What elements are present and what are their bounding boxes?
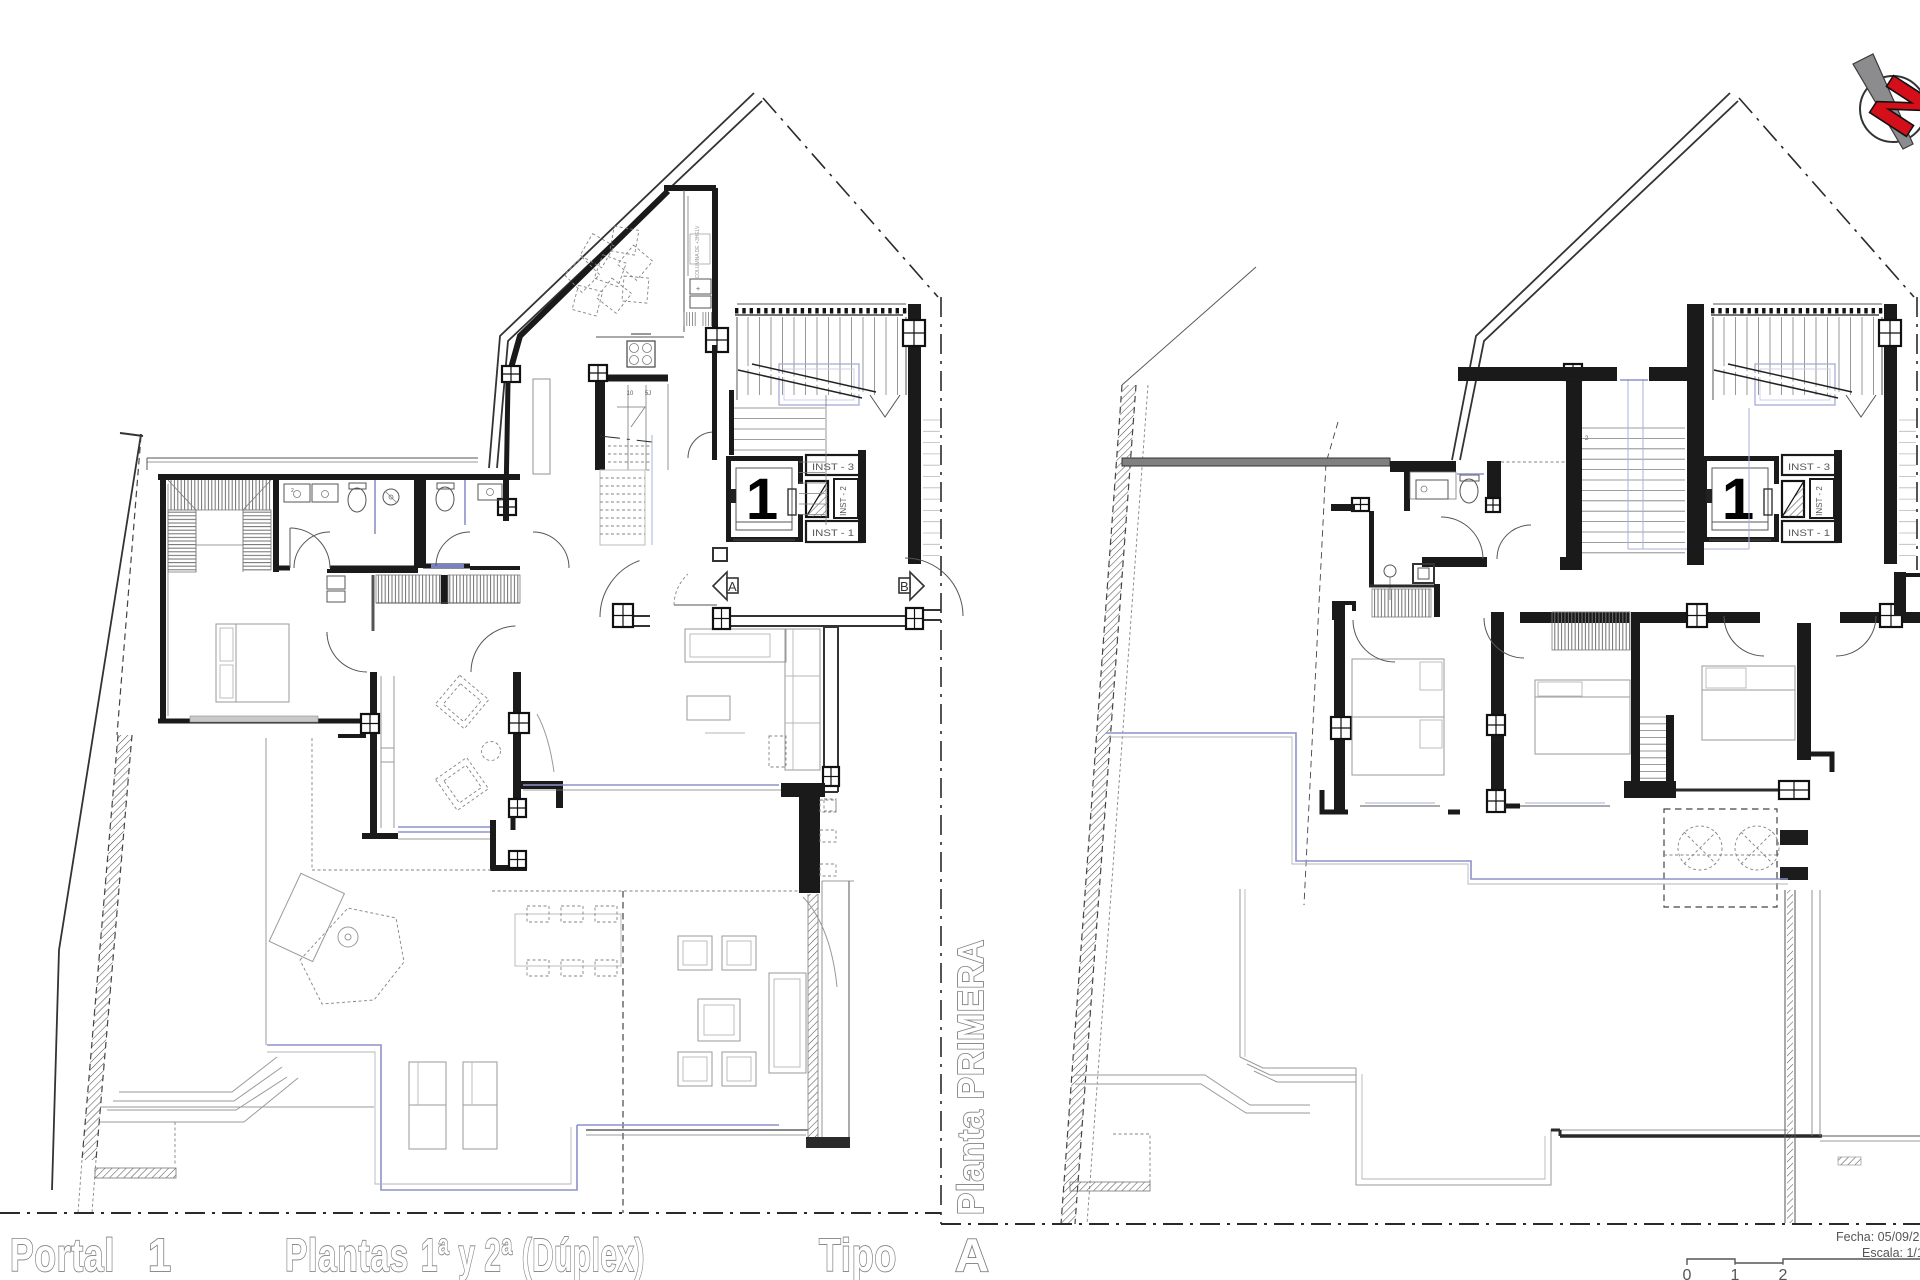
svg-text:A: A [955, 1229, 990, 1280]
svg-text:INST - 2: INST - 2 [1815, 486, 1824, 516]
svg-text:1: 1 [148, 1229, 172, 1280]
svg-text:Portal: Portal [10, 1229, 115, 1280]
svg-text:5J: 5J [645, 391, 651, 397]
svg-text:10: 10 [627, 391, 634, 397]
svg-text:Planta PRIMERA: Planta PRIMERA [950, 939, 991, 1215]
svg-text:2: 2 [291, 488, 294, 494]
svg-text:0: 0 [1683, 1267, 1692, 1280]
svg-text:1: 1 [1731, 1267, 1740, 1280]
svg-text:1ª y 2ª (Dúplex): 1ª y 2ª (Dúplex) [421, 1229, 645, 1280]
svg-text:INST - 1: INST - 1 [1788, 528, 1830, 538]
svg-text:+: + [696, 286, 700, 293]
svg-text:Escala: 1/100: Escala: 1/100 [1862, 1246, 1920, 1260]
svg-text:B: B [900, 579, 909, 594]
svg-text:INST - 3: INST - 3 [812, 462, 854, 472]
svg-text:INST - 3: INST - 3 [1788, 462, 1830, 472]
svg-text:1: 1 [746, 467, 778, 532]
svg-text:Plantas: Plantas [285, 1229, 409, 1280]
svg-text:Fecha: 05/09/2023: Fecha: 05/09/2023 [1836, 1230, 1920, 1244]
svg-text:INST - 1: INST - 1 [812, 528, 854, 538]
svg-text:INST - 2: INST - 2 [839, 486, 848, 516]
svg-text:2: 2 [1779, 1267, 1788, 1280]
svg-text:Tipo: Tipo [819, 1229, 897, 1280]
svg-text:A: A [728, 579, 737, 594]
svg-text:COLUMNA DE +3HELV: COLUMNA DE +3HELV [695, 225, 701, 279]
